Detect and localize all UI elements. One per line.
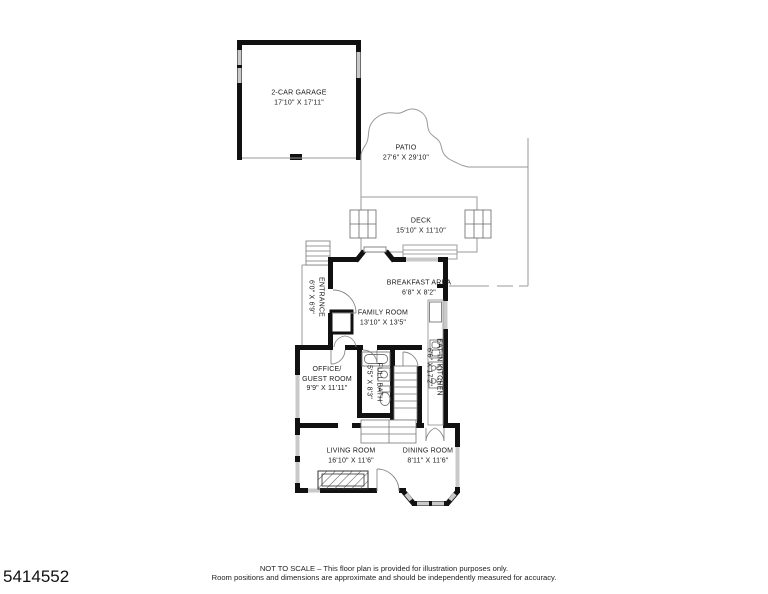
garage-windows (238, 50, 361, 83)
disclaimer: NOT TO SCALE – This floor plan is provid… (0, 564, 768, 582)
room-label-breakfast: BREAKFAST AREA 6'8" X 8'2" (387, 279, 452, 298)
entrance-stairs (306, 241, 330, 265)
bay-window-glass (406, 494, 455, 500)
room-label-office: OFFICE/ GUEST ROOM 9'9" X 11'11" (302, 365, 352, 394)
room-dims: 13'10" X 13'5" (358, 318, 408, 328)
room-label-deck: DECK 15'10" X 11'10" (396, 217, 446, 236)
room-name: DINING ROOM (403, 447, 453, 457)
deck-left-stairs (350, 210, 376, 238)
room-label-bath: FULL BATH 5'5" X 8'3" (365, 363, 384, 402)
room-label-garage: 2-CAR GARAGE 17'10" X 17'11" (271, 89, 326, 108)
closet (331, 311, 356, 347)
room-dims: 15'10" X 11'10" (396, 226, 446, 236)
floor-plan-page: 2-CAR GARAGE 17'10" X 17'11" PATIO 27'6"… (0, 0, 768, 594)
room-dims: 8'11" X 11'6" (403, 456, 453, 466)
room-dims: 9'9" X 11'11" (302, 384, 352, 394)
room-label-kitchen: EAT-IN KITCHEN 6'6" X 17'2" (425, 338, 444, 396)
deck-right-stairs (465, 210, 491, 238)
room-dims: 6'0" X 6'9" (307, 277, 317, 317)
room-name: 2-CAR GARAGE (271, 89, 326, 99)
room-dims: 6'6" X 17'2" (425, 338, 435, 396)
room-dims: 16'10" X 11'6" (327, 456, 376, 466)
room-name: LIVING ROOM (327, 447, 376, 457)
room-dims: 6'8" X 8'2" (387, 288, 452, 298)
room-label-living: LIVING ROOM 16'10" X 11'6" (327, 447, 376, 466)
room-name: PATIO (383, 144, 429, 154)
fireplace-symbol (318, 471, 368, 489)
room-name: BREAKFAST AREA (387, 279, 452, 289)
room-label-dining: DINING ROOM 8'11" X 11'6" (403, 447, 453, 466)
room-label-entrance: ENTRANCE 6'0" X 6'9" (307, 277, 326, 317)
room-dims: 27'6" X 29'10" (383, 153, 429, 163)
room-name-line2: GUEST ROOM (302, 374, 352, 384)
floor-plan-drawing (0, 0, 768, 594)
disclaimer-line1: NOT TO SCALE – This floor plan is provid… (0, 564, 768, 573)
deck-landing-steps (403, 245, 457, 259)
deck-door (364, 247, 386, 252)
room-label-family: FAMILY ROOM 13'10" X 13'5" (358, 309, 408, 328)
room-label-patio: PATIO 27'6" X 29'10" (383, 144, 429, 163)
room-name-line1: OFFICE/ (302, 365, 352, 375)
room-dims: 17'10" X 17'11" (271, 98, 326, 108)
room-name: DECK (396, 217, 446, 227)
room-name: ENTRANCE (316, 277, 326, 317)
refrigerator-symbol (430, 302, 442, 322)
room-name: FULL BATH (374, 363, 384, 402)
room-name: EAT-IN KITCHEN (434, 338, 444, 396)
disclaimer-line2: Room positions and dimensions are approx… (0, 573, 768, 582)
room-dims: 5'5" X 8'3" (365, 363, 375, 402)
room-name: FAMILY ROOM (358, 309, 408, 319)
listing-id: 5414552 (3, 567, 69, 587)
